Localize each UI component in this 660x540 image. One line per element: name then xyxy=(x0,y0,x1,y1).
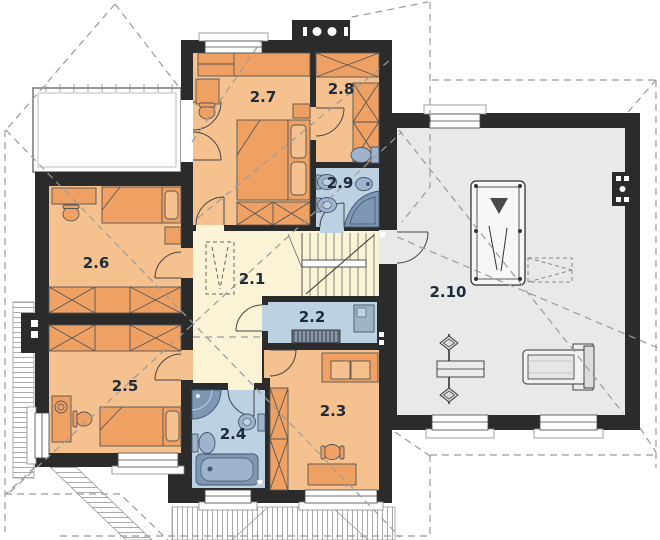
chair-icon xyxy=(63,205,79,221)
roof-dash-line xyxy=(640,428,656,452)
sofa-icon xyxy=(322,353,378,382)
bidet-icon xyxy=(356,178,373,191)
toilet-icon xyxy=(351,147,379,163)
floor-plan-canvas: 2.1 2.2 2.3 2.4 2.5 2.6 2.7 2.8 2.9 2.10 xyxy=(0,0,660,540)
chimney-right xyxy=(612,172,633,206)
room-label-2-9: 2.9 xyxy=(327,174,354,192)
desk-icon xyxy=(52,188,96,204)
chair-icon xyxy=(321,445,344,460)
roof-dash-line xyxy=(115,4,178,86)
bed-icon xyxy=(100,407,181,446)
wall-fixture-dot xyxy=(379,340,384,345)
toilet-icon xyxy=(192,433,215,454)
floor-plan-drawing: 2.1 2.2 2.3 2.4 2.5 2.6 2.7 2.8 2.9 2.10 xyxy=(0,0,660,540)
room-label-2-2: 2.2 xyxy=(299,308,326,326)
room-label-2-5: 2.5 xyxy=(112,377,139,395)
balcony xyxy=(33,84,181,172)
nightstand-icon xyxy=(165,227,181,244)
desk-icon xyxy=(196,79,219,104)
window-bottom-2-3 xyxy=(299,490,383,510)
nightstand-icon xyxy=(293,104,310,118)
stair-railing xyxy=(302,260,366,267)
wall-fixture-dot xyxy=(380,232,385,237)
room-label-2-1: 2.1 xyxy=(239,270,266,288)
billiard-table-icon xyxy=(471,181,525,285)
roof-hatch-bottom-center xyxy=(172,507,395,540)
wardrobe-icon xyxy=(237,202,310,225)
window-top-2-7 xyxy=(199,33,268,53)
wall-fixture-dot xyxy=(257,479,263,485)
roof-dash-line xyxy=(628,80,656,112)
room-label-2-3: 2.3 xyxy=(320,402,347,420)
room-label-2-10: 2.10 xyxy=(429,283,466,301)
wardrobe-icon xyxy=(49,287,181,313)
window-left-2-5 xyxy=(27,407,49,464)
double-bed-icon xyxy=(237,120,310,200)
window-bottom-2-10-left xyxy=(426,415,494,438)
window-bottom-2-5 xyxy=(112,453,184,474)
window-bottom-2-10-right xyxy=(534,415,603,438)
desk-icon xyxy=(354,305,374,332)
room-label-2-4: 2.4 xyxy=(220,425,247,443)
bed-icon xyxy=(102,187,181,223)
desk-icon xyxy=(52,396,71,442)
chair-icon xyxy=(73,411,92,427)
room-label-2-8: 2.8 xyxy=(328,80,355,98)
roof-dash-line xyxy=(352,2,428,17)
wall-fixture-dot xyxy=(379,332,384,337)
balcony-door-opening xyxy=(181,100,193,162)
radiator-icon xyxy=(292,330,340,343)
treadmill-icon xyxy=(523,344,594,390)
roof-hatch-bottom-left-band xyxy=(50,467,152,540)
window-top-2-10 xyxy=(424,105,486,128)
roof-dash-line xyxy=(395,432,430,456)
bathtub-icon xyxy=(196,454,258,485)
room-label-2-7: 2.7 xyxy=(250,88,277,106)
window-bottom-2-4 xyxy=(199,490,257,510)
room-label-2-6: 2.6 xyxy=(83,254,110,272)
wardrobe-icon xyxy=(198,53,310,76)
wardrobe-icon xyxy=(49,325,181,351)
wardrobe-icon xyxy=(316,53,379,77)
room-2-1-corridor-floor xyxy=(193,296,262,383)
washbasin-icon xyxy=(316,198,337,213)
wardrobe-icon xyxy=(270,388,288,490)
